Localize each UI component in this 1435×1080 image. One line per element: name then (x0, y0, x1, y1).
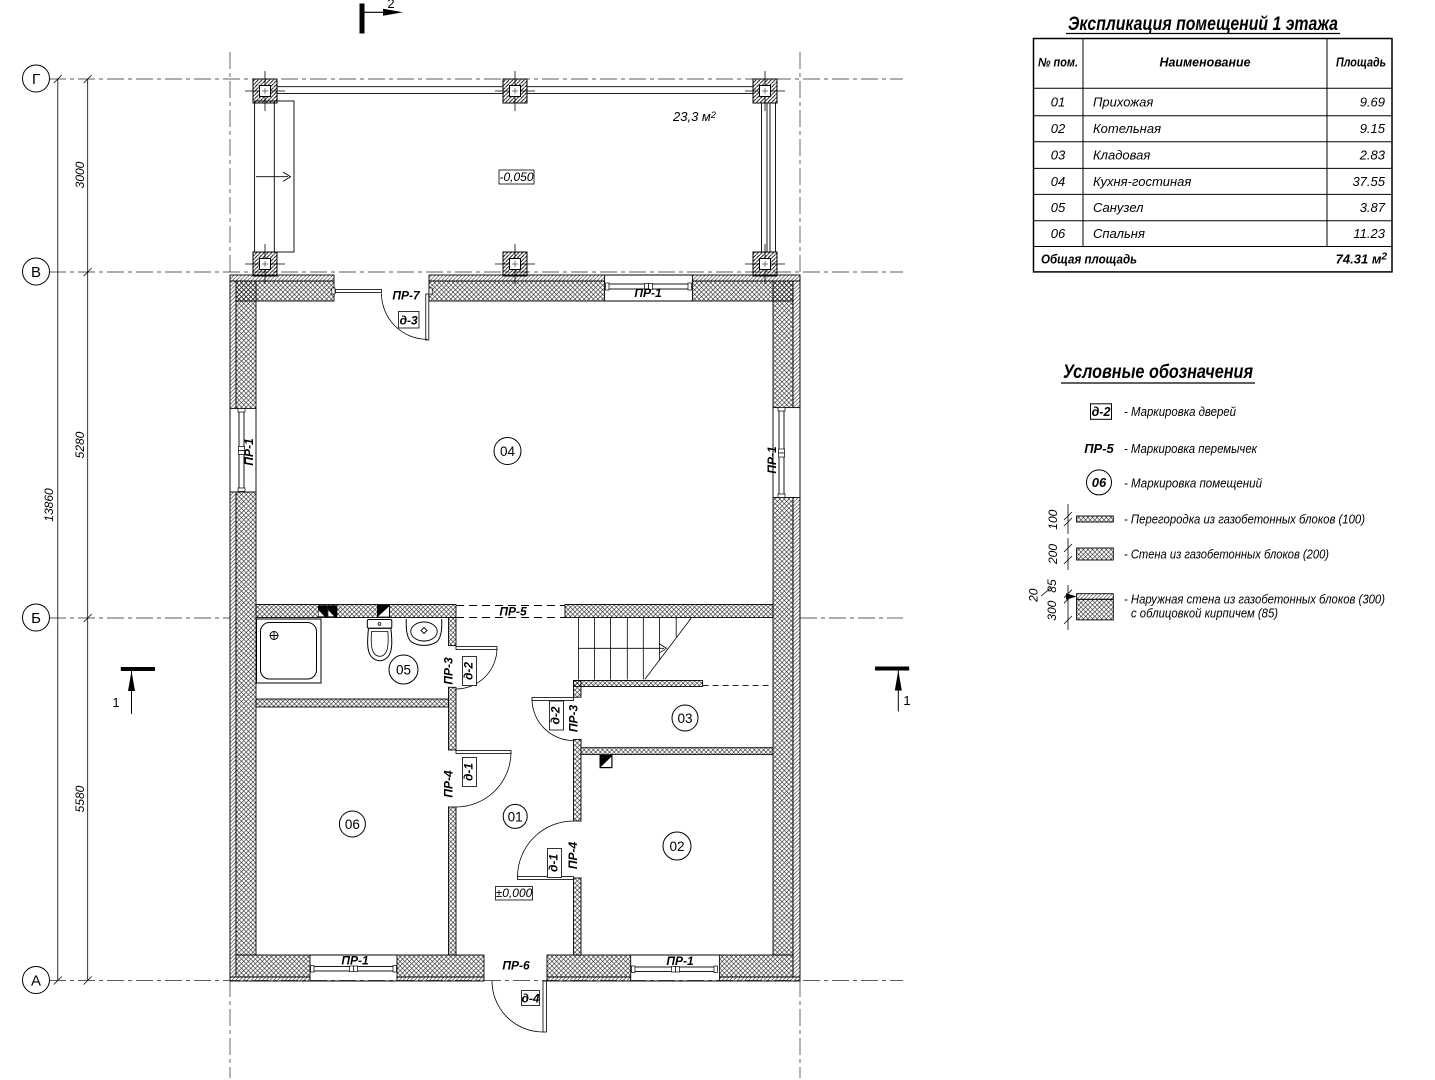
svg-text:д-1: д-1 (547, 854, 561, 872)
svg-text:37.55: 37.55 (1352, 174, 1385, 189)
svg-text:02: 02 (669, 839, 684, 854)
svg-text:05: 05 (396, 663, 411, 678)
svg-text:02: 02 (1051, 121, 1066, 136)
svg-text:100: 100 (1046, 509, 1060, 529)
svg-text:06: 06 (1092, 475, 1107, 490)
svg-text:1: 1 (903, 693, 910, 708)
svg-text:д-1: д-1 (462, 763, 476, 781)
svg-text:- Маркировка дверей: - Маркировка дверей (1124, 404, 1236, 419)
svg-text:9.69: 9.69 (1360, 95, 1385, 110)
svg-text:-0,050: -0,050 (499, 170, 533, 184)
svg-text:В: В (31, 264, 41, 281)
svg-text:74.31 м2: 74.31 м2 (1336, 252, 1388, 267)
svg-text:ПР-3: ПР-3 (442, 657, 456, 685)
svg-text:ПР-5: ПР-5 (499, 605, 527, 619)
svg-text:Условные обозначения: Условные обозначения (1063, 362, 1253, 383)
svg-text:- Наружная стена из газобетонн: - Наружная стена из газобетонных блоков … (1124, 592, 1385, 607)
svg-text:Кладовая: Кладовая (1093, 148, 1150, 163)
svg-text:ПР-1: ПР-1 (242, 438, 256, 466)
svg-text:01: 01 (508, 809, 523, 824)
svg-text:- Маркировка перемычек: - Маркировка перемычек (1124, 441, 1258, 456)
svg-text:ПР-1: ПР-1 (666, 954, 694, 968)
svg-text:04: 04 (500, 444, 516, 459)
svg-text:Площадь: Площадь (1336, 56, 1386, 70)
svg-text:06: 06 (1051, 226, 1066, 241)
svg-text:03: 03 (1051, 148, 1066, 163)
svg-text:Кухня-гостиная: Кухня-гостиная (1093, 174, 1191, 189)
svg-text:Общая площадь: Общая площадь (1041, 252, 1137, 267)
svg-text:11.23: 11.23 (1353, 226, 1385, 241)
svg-text:Санузел: Санузел (1093, 200, 1144, 215)
svg-text:1: 1 (112, 695, 119, 710)
svg-text:13860: 13860 (42, 488, 56, 522)
svg-text:с облицовкой кирпичем (85): с облицовкой кирпичем (85) (1131, 606, 1278, 621)
svg-text:5280: 5280 (73, 431, 87, 458)
svg-text:23,3 м2: 23,3 м2 (672, 109, 716, 124)
svg-text:д-3: д-3 (400, 314, 418, 328)
svg-text:ПР-1: ПР-1 (765, 446, 779, 474)
svg-text:д-2: д-2 (1092, 405, 1111, 419)
svg-text:04: 04 (1051, 174, 1065, 189)
svg-text:д-4: д-4 (521, 992, 539, 1006)
svg-text:Г: Г (32, 71, 40, 88)
svg-text:ПР-3: ПР-3 (567, 705, 581, 733)
svg-text:9.15: 9.15 (1360, 121, 1386, 136)
svg-text:- Стена из газобетонных блоков: - Стена из газобетонных блоков (200) (1124, 547, 1329, 562)
svg-text:Прихожая: Прихожая (1093, 95, 1153, 110)
svg-text:2.83: 2.83 (1359, 148, 1386, 163)
svg-text:Экспликация помещений 1 этажа: Экспликация помещений 1 этажа (1068, 13, 1338, 35)
svg-text:85: 85 (1045, 579, 1059, 593)
svg-text:д-2: д-2 (549, 706, 563, 724)
svg-text:Наименование: Наименование (1160, 56, 1251, 70)
svg-text:- Перегородка из газобетонных: - Перегородка из газобетонных блоков (10… (1124, 512, 1365, 527)
svg-text:3.87: 3.87 (1360, 200, 1386, 215)
svg-text:ПР-4: ПР-4 (566, 842, 580, 870)
svg-text:06: 06 (345, 817, 360, 832)
svg-text:Б: Б (31, 610, 41, 627)
svg-text:±0,000: ±0,000 (496, 886, 533, 900)
svg-text:20: 20 (1027, 588, 1041, 603)
svg-text:ПР-7: ПР-7 (392, 289, 421, 303)
svg-text:5580: 5580 (73, 785, 87, 812)
svg-text:ПР-1: ПР-1 (341, 954, 369, 968)
svg-text:01: 01 (1051, 95, 1065, 110)
svg-text:03: 03 (677, 711, 692, 726)
svg-text:3000: 3000 (73, 161, 87, 188)
svg-text:05: 05 (1051, 200, 1066, 215)
svg-text:ПР-1: ПР-1 (634, 286, 662, 300)
svg-text:ПР-4: ПР-4 (442, 770, 456, 798)
svg-text:Спальня: Спальня (1093, 226, 1145, 241)
svg-text:200: 200 (1046, 544, 1060, 565)
svg-text:ПР-5: ПР-5 (1084, 441, 1114, 456)
svg-text:2: 2 (387, 0, 394, 11)
svg-text:- Маркировка помещений: - Маркировка помещений (1124, 476, 1262, 491)
svg-text:ПР-6: ПР-6 (502, 959, 530, 973)
svg-text:№ пом.: № пом. (1038, 56, 1078, 70)
svg-text:д-2: д-2 (462, 662, 476, 680)
svg-text:Котельная: Котельная (1093, 121, 1161, 136)
svg-text:300: 300 (1045, 600, 1059, 620)
svg-text:А: А (31, 973, 41, 990)
